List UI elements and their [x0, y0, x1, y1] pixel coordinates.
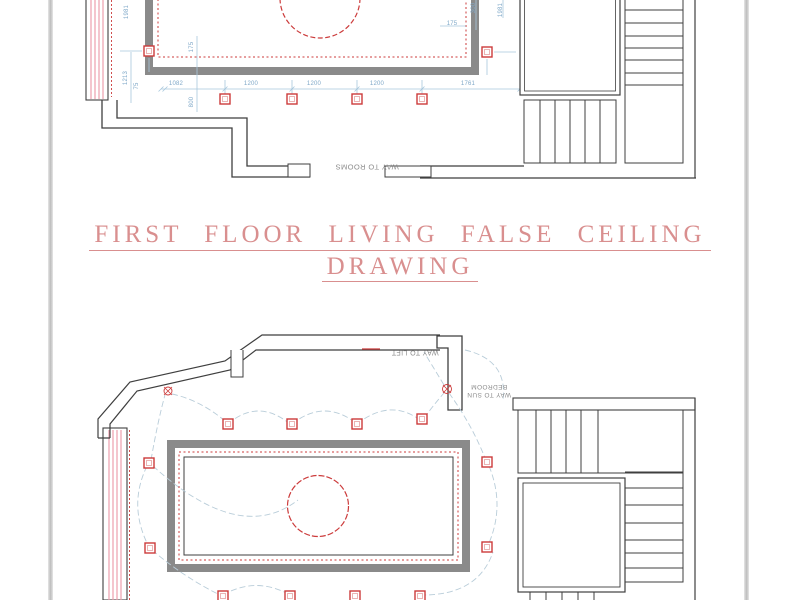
ceiling-light-fixture — [482, 457, 492, 467]
window-wall-left-bottom — [103, 428, 130, 600]
ceiling-light-fixture — [482, 47, 492, 57]
dimension-label: 1200 — [307, 81, 321, 87]
way-to-sun-line: WAY TO SUN — [467, 390, 511, 398]
ceiling-light-fixture — [223, 419, 233, 429]
false-ceiling-cove — [149, 0, 475, 71]
ceiling-light-fixture — [144, 458, 154, 468]
drawing-title: FIRST FLOOR LIVING FALSE CEILING DRAWING — [0, 221, 800, 282]
way-to-sun-bedroom-label: WAY TO SUN BEDROOM — [467, 382, 511, 398]
dimension-label: 1981 — [124, 5, 130, 19]
ceiling-light-fixture — [145, 543, 155, 553]
dimension-label: 1761 — [461, 81, 475, 87]
dimension-label: 175 — [189, 42, 195, 53]
lift-corridor-wall — [437, 336, 462, 410]
cove-light-dashed-line — [179, 452, 458, 560]
staircase-top-plan — [520, 0, 695, 178]
false-ceiling-cove — [171, 444, 466, 568]
wiring-junction-rose — [164, 385, 452, 396]
bottom-floor-plan — [98, 335, 695, 600]
ceiling-light-fixture — [352, 94, 362, 104]
dimension-label: 1200 — [244, 81, 258, 87]
ceiling-feature-circle — [280, 0, 360, 38]
chamfered-top-wall — [98, 335, 440, 438]
ceiling-light-fixture — [287, 419, 297, 429]
window-wall-left — [86, 0, 112, 100]
dimension-label: 1082 — [169, 81, 183, 87]
ceiling-light-fixture — [144, 46, 154, 56]
way-to-rooms-label: WAY TO ROOMS — [335, 163, 399, 172]
dimension-label: 1213 — [123, 71, 129, 85]
dimension-linework — [120, 0, 523, 112]
ceiling-light-fixture — [417, 94, 427, 104]
wall-notch — [231, 350, 243, 377]
top-floor-plan — [86, 0, 696, 178]
bedroom-line: BEDROOM — [467, 382, 511, 390]
dimension-label: 300 — [471, 3, 477, 14]
cad-drawing-sheet: WAY TO ROOMS WAY TO LIFT WAY TO SUN BEDR… — [0, 0, 800, 600]
dimension-label: 175 — [447, 21, 458, 27]
dimension-label: 800 — [189, 97, 195, 108]
drawing-title-line1: FIRST FLOOR LIVING FALSE CEILING — [89, 221, 710, 251]
dimension-label: 75 — [134, 82, 140, 89]
floor-plan-linework — [0, 0, 800, 600]
ceiling-light-fixture — [417, 414, 427, 424]
staircase-bottom-plan — [513, 398, 695, 600]
dimension-label: 1981 — [498, 3, 504, 17]
drawing-title-line2: DRAWING — [322, 253, 479, 283]
ceiling-light-fixture — [287, 94, 297, 104]
way-to-lift-label: WAY TO LIFT — [391, 349, 438, 356]
ceiling-light-fixture — [220, 94, 230, 104]
dimension-label: 1200 — [370, 81, 384, 87]
ceiling-feature-circle — [288, 476, 349, 537]
ceiling-inner-edge — [184, 457, 453, 555]
ceiling-light-fixture — [352, 419, 362, 429]
door-panel — [288, 164, 310, 177]
ceiling-light-fixture — [482, 542, 492, 552]
cove-light-dashed-line — [158, 0, 466, 57]
